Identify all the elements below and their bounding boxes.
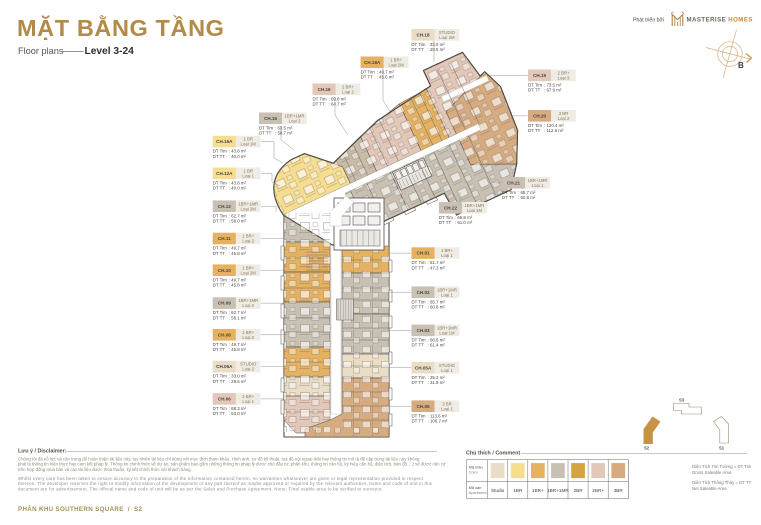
svg-text:DT TT: DT TT — [259, 131, 272, 136]
svg-text:: 45.8 m²: : 45.8 m² — [229, 283, 247, 288]
svg-text:Loại 2: Loại 2 — [242, 335, 254, 340]
svg-text:CH.16: CH.16 — [318, 87, 331, 92]
svg-text:DT TT: DT TT — [213, 251, 226, 256]
svg-text:Net Saleable Area: Net Saleable Area — [692, 486, 727, 491]
svg-text:: 40.0 m²: : 40.0 m² — [229, 186, 247, 191]
svg-text:CH.05A: CH.05A — [415, 365, 432, 370]
svg-text:CH.20: CH.20 — [533, 113, 546, 118]
svg-text:: 58.7 m²: : 58.7 m² — [275, 131, 293, 136]
svg-text:Phát triển bởi: Phát triển bởi — [633, 17, 664, 24]
svg-text:Loại 2M: Loại 2M — [439, 35, 455, 40]
svg-text:DT TT: DT TT — [439, 220, 452, 225]
svg-text:Loại 2: Loại 2 — [558, 116, 570, 121]
svg-text:Color: Color — [469, 470, 479, 475]
svg-text:Loại 1: Loại 1 — [242, 399, 254, 404]
svg-text:DT TT: DT TT — [502, 195, 515, 200]
svg-text:DT TT: DT TT — [313, 102, 326, 107]
svg-text:DT TT: DT TT — [412, 380, 425, 385]
svg-text:DT TT: DT TT — [213, 411, 226, 416]
svg-text:Loại 2: Loại 2 — [242, 367, 254, 372]
svg-text:Loại 1M: Loại 1M — [439, 331, 455, 336]
svg-text:Loại 2M: Loại 2M — [241, 270, 257, 275]
svg-text:DT TT: DT TT — [213, 347, 226, 352]
svg-text:CH.09: CH.09 — [218, 301, 231, 306]
svg-text:Lưu ý / Disclaimer:: Lưu ý / Disclaimer: — [18, 449, 67, 455]
svg-text:CH.18: CH.18 — [416, 32, 429, 37]
svg-text:Loại 1: Loại 1 — [441, 406, 453, 411]
svg-text:CH.21: CH.21 — [507, 180, 520, 185]
svg-text:: 29.5 m²: : 29.5 m² — [229, 379, 247, 384]
svg-text:: 64.7 m²: : 64.7 m² — [329, 102, 347, 107]
svg-text:MẶT BẰNG TẦNG: MẶT BẰNG TẦNG — [17, 14, 225, 41]
svg-text:DT TT: DT TT — [213, 154, 226, 159]
svg-text:1BR+1MR: 1BR+1MR — [547, 488, 569, 493]
svg-text:DT TT: DT TT — [213, 219, 226, 224]
svg-text:Gross Saleable Area: Gross Saleable Area — [692, 470, 732, 475]
svg-text:: 45.8 m²: : 45.8 m² — [229, 251, 247, 256]
svg-text:: 29.5 m²: : 29.5 m² — [427, 47, 445, 52]
svg-text:DT TT: DT TT — [213, 186, 226, 191]
svg-text:2BR+: 2BR+ — [592, 488, 604, 493]
svg-text:Apartment: Apartment — [469, 490, 488, 495]
svg-text:: 40.0 m²: : 40.0 m² — [229, 154, 247, 159]
svg-text:DT TT: DT TT — [412, 343, 425, 348]
svg-text:CH.12A: CH.12A — [216, 171, 233, 176]
svg-text:DT TT: DT TT — [412, 265, 425, 270]
svg-text:: 63.0 m²: : 63.0 m² — [229, 411, 247, 416]
svg-text:DT TT: DT TT — [411, 47, 424, 52]
svg-text:: 58.0 m²: : 58.0 m² — [229, 219, 247, 224]
svg-text:Loại 2: Loại 2 — [242, 239, 254, 244]
svg-text:Loại 1: Loại 1 — [441, 253, 453, 258]
svg-text:Studio: Studio — [491, 488, 505, 493]
svg-text:DT TT: DT TT — [412, 419, 425, 424]
svg-text:CH.11: CH.11 — [218, 236, 231, 241]
svg-text:DT TT: DT TT — [213, 379, 226, 384]
svg-text:Loại 1M: Loại 1M — [467, 208, 483, 213]
svg-text:3BR: 3BR — [614, 488, 624, 493]
svg-text:CH.06A: CH.06A — [216, 364, 233, 369]
svg-text:Loại 1: Loại 1 — [242, 173, 254, 178]
svg-text:: 106.7 m²: : 106.7 m² — [428, 419, 448, 424]
svg-text:Loại 3: Loại 3 — [558, 75, 570, 80]
svg-text:Floor plans: Floor plans — [18, 46, 64, 56]
svg-text:MASTERISE HOMES: MASTERISE HOMES — [687, 16, 753, 23]
svg-text:Loại 2: Loại 2 — [342, 89, 354, 94]
svg-text:: 112.6 m²: : 112.6 m² — [544, 128, 564, 133]
svg-text:Loại 1: Loại 1 — [441, 368, 453, 373]
svg-text:DT TT: DT TT — [213, 283, 226, 288]
svg-text:Level 3-24: Level 3-24 — [85, 46, 135, 57]
svg-text:CH.02: CH.02 — [417, 290, 430, 295]
svg-text:S3: S3 — [679, 398, 685, 403]
svg-text:: 60.8 m²: : 60.8 m² — [518, 195, 536, 200]
svg-text:PHÂN KHU SOUTHERN SQUARE / S: PHÂN KHU SOUTHERN SQUARE / S2 — [18, 506, 143, 513]
svg-text:Loại 2: Loại 2 — [242, 303, 254, 308]
svg-text:Loại 1: Loại 1 — [441, 292, 453, 297]
svg-text:trên hợp đồng mua bán và các t: trên hợp đồng mua bán và các tài liệu đư… — [18, 467, 192, 472]
svg-text:DT TT: DT TT — [213, 315, 226, 320]
svg-text:CH.10: CH.10 — [218, 268, 231, 273]
svg-text:CH.01: CH.01 — [417, 251, 430, 256]
svg-text:DT TT: DT TT — [528, 88, 541, 93]
svg-text:: 58.1 m²: : 58.1 m² — [229, 315, 247, 320]
svg-text:: 31.8 m²: : 31.8 m² — [428, 380, 446, 385]
svg-text:DT TT: DT TT — [361, 75, 374, 80]
svg-text:: 47.3 m²: : 47.3 m² — [428, 265, 446, 270]
svg-text:CH.22: CH.22 — [444, 205, 457, 210]
svg-text:B: B — [738, 61, 744, 70]
svg-text:DT TT: DT TT — [412, 305, 425, 310]
svg-text:: 61.4 m²: : 61.4 m² — [428, 343, 446, 348]
svg-text:CH.03: CH.03 — [417, 328, 430, 333]
svg-text:CH.08: CH.08 — [218, 332, 231, 337]
svg-text:CH.18A: CH.18A — [364, 60, 381, 65]
svg-text:Loại 2M: Loại 2M — [388, 62, 404, 67]
svg-text:: 45.8 m²: : 45.8 m² — [229, 347, 247, 352]
svg-text:Loại 2M: Loại 2M — [241, 206, 257, 211]
svg-text:: 60.8 m²: : 60.8 m² — [428, 305, 446, 310]
svg-text:CH.05: CH.05 — [417, 404, 430, 409]
svg-text:Loại 1M: Loại 1M — [241, 142, 257, 147]
svg-text:: 45.6 m²: : 45.6 m² — [377, 75, 395, 80]
svg-text:S2: S2 — [644, 446, 650, 451]
svg-text:Loại 2: Loại 2 — [289, 118, 301, 123]
svg-text:CH.16A: CH.16A — [216, 139, 233, 144]
svg-text:DT TT: DT TT — [528, 128, 541, 133]
svg-text:CH.12: CH.12 — [218, 204, 231, 209]
svg-text:document are for advertisement: document are for advertisement. The offi… — [18, 486, 383, 491]
svg-text:CH.15: CH.15 — [264, 116, 277, 121]
svg-text:CH.19: CH.19 — [533, 73, 546, 78]
svg-text:Diện Tích Thông Thủy = DT TT: Diện Tích Thông Thủy = DT TT — [692, 480, 752, 485]
svg-text:: 61.0 m²: : 61.0 m² — [455, 220, 473, 225]
svg-text:CH.06: CH.06 — [218, 397, 231, 402]
svg-text:1BR+: 1BR+ — [532, 488, 544, 493]
svg-text:1BR: 1BR — [513, 488, 523, 493]
svg-text:Loại 1: Loại 1 — [532, 183, 544, 188]
svg-text:: 67.9 m²: : 67.9 m² — [544, 88, 562, 93]
svg-text:Diện Tích Tim Tường = DT Tim: Diện Tích Tim Tường = DT Tim — [692, 464, 752, 469]
svg-text:Chú thích / Comment: Chú thích / Comment — [466, 451, 520, 457]
svg-text:2BR: 2BR — [573, 488, 583, 493]
svg-text:S1: S1 — [719, 446, 725, 451]
